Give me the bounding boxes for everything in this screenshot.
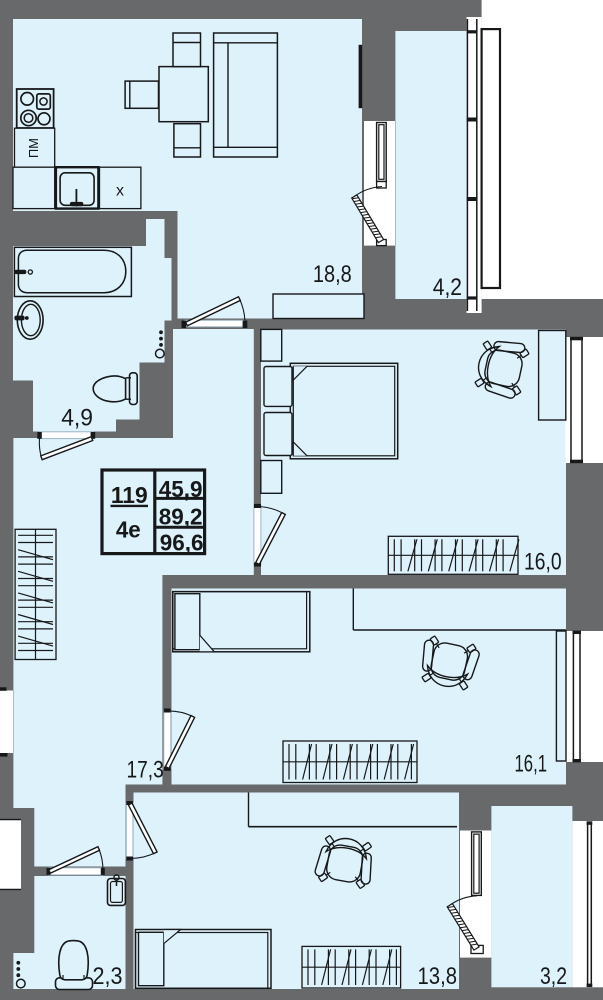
svg-text:16,1: 16,1 (515, 751, 548, 778)
svg-text:4,9: 4,9 (61, 405, 93, 432)
svg-text:13,8: 13,8 (418, 963, 458, 990)
svg-text:4е: 4е (116, 517, 141, 543)
svg-text:16,0: 16,0 (524, 549, 562, 576)
svg-text:2,3: 2,3 (93, 963, 123, 990)
svg-text:96,6: 96,6 (160, 530, 204, 556)
svg-text:89,2: 89,2 (159, 504, 203, 530)
svg-text:119: 119 (111, 482, 148, 508)
svg-text:x: x (116, 183, 124, 200)
svg-text:17,3: 17,3 (127, 757, 164, 784)
svg-text:3,2: 3,2 (540, 963, 567, 990)
svg-text:45,9: 45,9 (159, 476, 203, 502)
svg-text:ПМ: ПМ (26, 138, 41, 158)
svg-text:4,2: 4,2 (433, 274, 462, 301)
svg-text:18,8: 18,8 (313, 261, 352, 288)
